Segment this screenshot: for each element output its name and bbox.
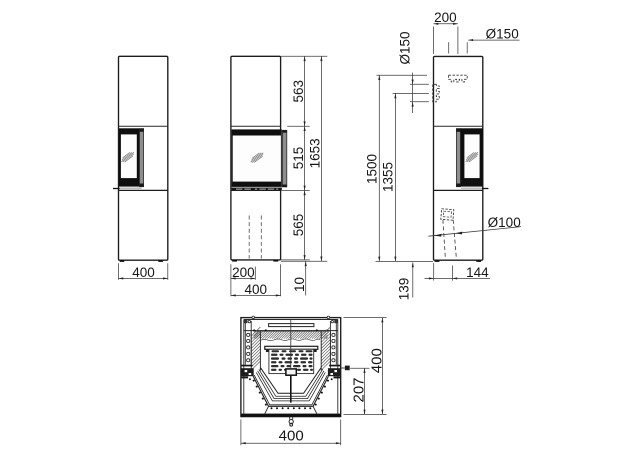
svg-text:400: 400: [245, 282, 268, 297]
svg-text:1355: 1355: [380, 162, 395, 192]
svg-text:207: 207: [350, 377, 367, 402]
svg-text:1653: 1653: [308, 138, 323, 168]
svg-text:563: 563: [291, 80, 306, 103]
svg-text:565: 565: [291, 214, 306, 237]
svg-text:515: 515: [291, 147, 306, 170]
svg-text:139: 139: [397, 278, 412, 301]
svg-text:10: 10: [292, 277, 307, 292]
svg-text:144: 144: [466, 265, 489, 280]
svg-text:200: 200: [232, 265, 255, 280]
svg-text:1500: 1500: [365, 154, 380, 184]
svg-text:200: 200: [434, 10, 457, 25]
svg-text:400: 400: [132, 265, 155, 280]
svg-text:Ø100: Ø100: [488, 215, 521, 230]
svg-text:Ø150: Ø150: [398, 31, 413, 64]
svg-text:400: 400: [279, 428, 304, 445]
svg-text:400: 400: [368, 348, 385, 373]
svg-text:Ø150: Ø150: [486, 27, 519, 42]
